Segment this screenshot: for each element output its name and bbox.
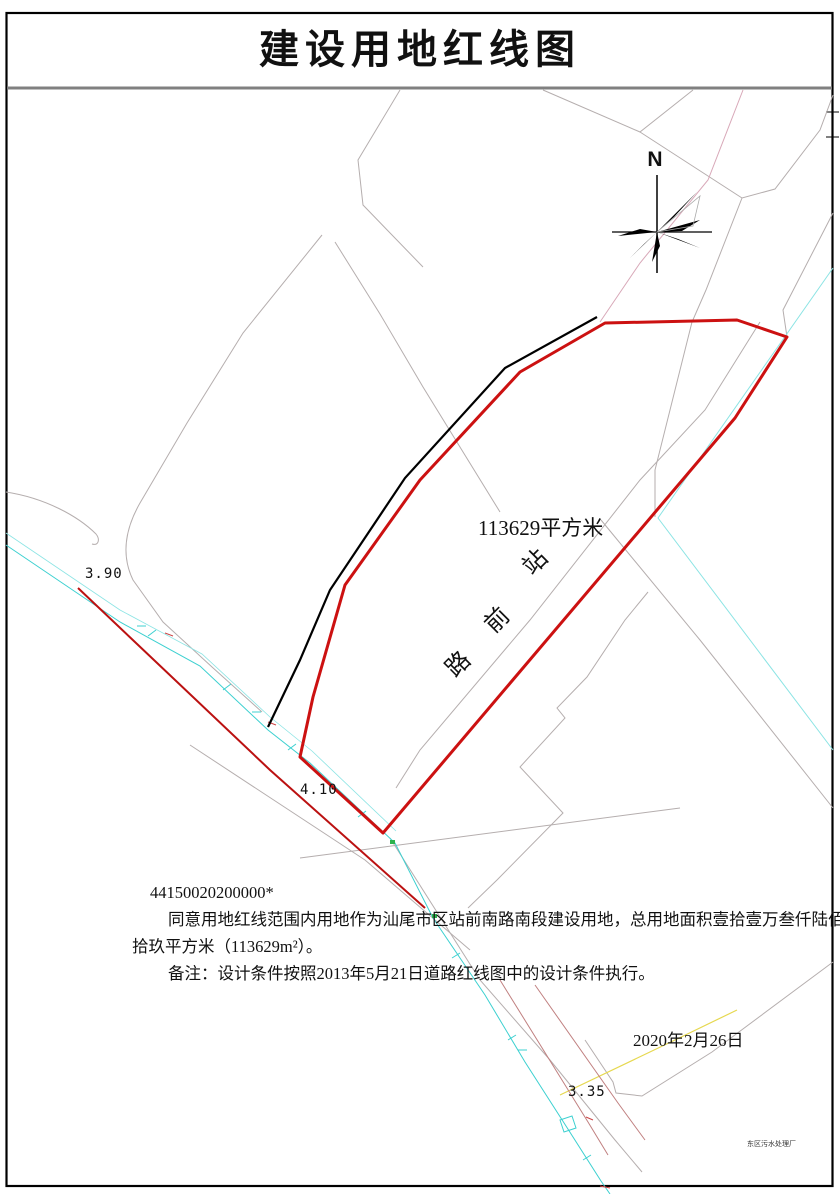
sewage-plant-label: 东区污水处理厂 (747, 1139, 796, 1148)
road-char-3: 路 (440, 646, 476, 682)
approval-date: 2020年2月26日 (633, 1031, 744, 1050)
sheet-title: 建设用地红线图 (259, 27, 581, 72)
elevation-390: 3.90 (85, 566, 123, 582)
canal-lines (6, 268, 833, 1194)
road-redline (78, 588, 425, 908)
north-compass: N (612, 148, 712, 273)
parcel-code: 44150020200000* (150, 883, 274, 902)
parcel-area-label: 113629平方米 (478, 516, 603, 540)
road-char-1: 站 (517, 544, 553, 580)
utility-lines (500, 90, 743, 1155)
road-char-2: 前 (479, 602, 515, 638)
approval-text-line1: 同意用地红线范围内用地作为汕尾市区站前南路南段建设用地，总用地面积壹拾壹万叁仟陆… (168, 910, 840, 929)
north-label: N (647, 148, 662, 171)
redline-boundary (300, 320, 787, 833)
approval-annotation: 44150020200000* 同意用地红线范围内用地作为汕尾市区站前南路南段建… (132, 883, 840, 1050)
road-name-label: 站 前 路 (440, 544, 553, 682)
elevation-410: 4.10 (300, 782, 338, 798)
elevation-335: 3.35 (568, 1084, 606, 1100)
sheet-frame (7, 13, 840, 1186)
canal-branch (658, 268, 833, 750)
approval-text-line2: 拾玖平方米（113629m²）。 (132, 937, 322, 956)
redline-map-sheet: 建设用地红线图 (0, 0, 840, 1194)
design-note: 备注：设计条件按照2013年5月21日道路红线图中的设计条件执行。 (168, 964, 655, 983)
parcel-lines (6, 90, 833, 1172)
map-canvas: 建设用地红线图 (0, 0, 840, 1194)
